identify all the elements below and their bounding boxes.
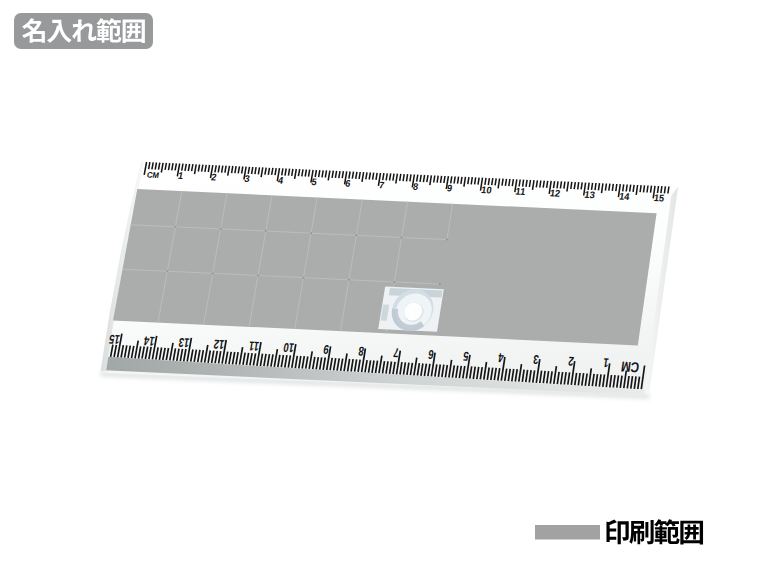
- svg-text:CM: CM: [146, 170, 160, 180]
- svg-text:CM: CM: [620, 358, 640, 375]
- svg-text:12: 12: [549, 187, 561, 199]
- svg-text:13: 13: [584, 189, 596, 201]
- svg-text:10: 10: [480, 184, 492, 196]
